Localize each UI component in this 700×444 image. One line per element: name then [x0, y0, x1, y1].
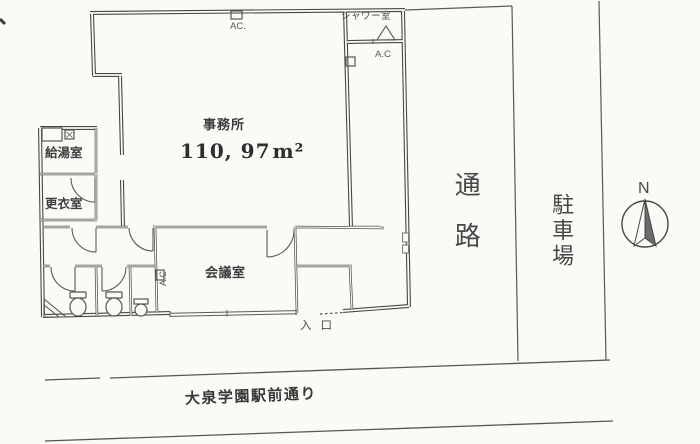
boundary-lines: [405, 1, 606, 361]
compass-icon: [622, 199, 668, 247]
office-area-value: 110, 97m²: [180, 141, 304, 162]
door-arcs: [51, 178, 294, 291]
toilet-icon: [70, 292, 86, 316]
area-unit: m²: [273, 139, 305, 163]
scan-mark: [0, 19, 5, 24]
ac-unit-label-meeting: A.C: [159, 271, 168, 286]
compass-north-label: N: [638, 181, 650, 198]
shower-room-label: シャワー室: [341, 13, 391, 23]
shower-triangle-icon: [377, 26, 395, 40]
floorplan-drawing: [0, 0, 700, 444]
changing-room-label: 更衣室: [45, 198, 83, 211]
entrance-label: 入口: [300, 320, 341, 332]
passage-label: 通路: [452, 171, 479, 273]
parking-label: 駐車場: [550, 193, 573, 270]
kitchen-sink-icon: [42, 128, 74, 141]
office-room-label: 事務所: [203, 118, 245, 132]
kitchen-room-label: 給湯室: [45, 147, 83, 160]
floorplan-page: シャワー室 AC. A.C A.C 事務所 110, 97m² 給湯室 更衣室 …: [0, 0, 700, 444]
window-marks: [170, 39, 373, 317]
toilet-icon: [106, 292, 122, 316]
entrance-dashed-line: [320, 313, 344, 315]
ac-unit-label-top: AC.: [230, 22, 246, 32]
area-number: 110, 97: [180, 139, 271, 163]
basin-icon: [134, 299, 148, 316]
meeting-room-label: 会議室: [205, 266, 246, 280]
street-lines: [45, 360, 613, 441]
ac-unit-label-corridor: A.C: [375, 50, 391, 60]
